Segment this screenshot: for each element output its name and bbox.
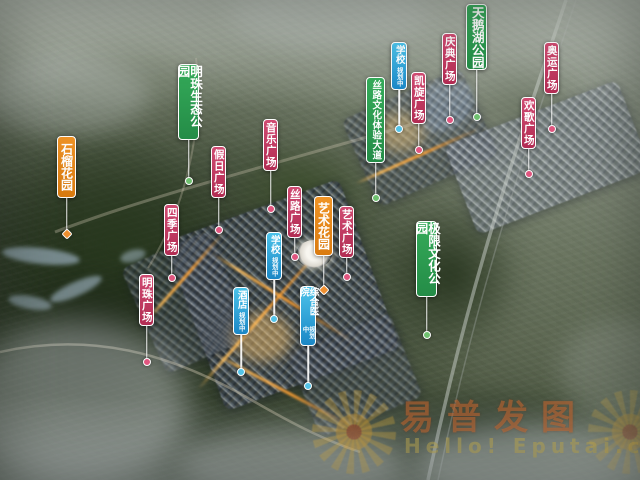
map-tag-art-plaza: 艺术广场 bbox=[339, 206, 354, 258]
map-tag-pearl-plaza: 明珠广场 bbox=[139, 274, 154, 326]
map-tag-text: 音乐广场 bbox=[265, 122, 276, 168]
map-tag-text: 假日广场 bbox=[213, 149, 224, 195]
map-pin-swan-lake-park: 天鹅湖公园 bbox=[466, 4, 487, 70]
pin-dot bbox=[473, 113, 481, 121]
map-tag-text: 石榴花园 bbox=[61, 143, 73, 191]
map-tag-extreme-culture-park: 极限文化公园 bbox=[416, 221, 437, 297]
map-tag-pomegranate-garden: 石榴花园 bbox=[57, 136, 76, 198]
map-tag-silk-road-plaza: 丝路广场 bbox=[287, 186, 302, 238]
pin-dot bbox=[343, 273, 351, 281]
map-tag-text: 庆典广场 bbox=[444, 36, 455, 82]
map-pin-pearl-plaza: 明珠广场 bbox=[139, 274, 154, 326]
map-tag-art-garden: 艺术花园 bbox=[314, 196, 333, 256]
map-pin-pearl-eco-park: 明珠生态公园 bbox=[178, 64, 199, 140]
map-tag-text: 艺术广场 bbox=[341, 209, 352, 255]
map-tag-text: 明珠生态公园 bbox=[176, 65, 201, 139]
map-tag-text: 丝路广场 bbox=[289, 189, 300, 235]
pin-line bbox=[528, 149, 530, 172]
map-tag-school-central: 学校规划中 bbox=[266, 232, 282, 280]
map-tag-music-plaza: 音乐广场 bbox=[263, 119, 278, 171]
pin-dot bbox=[267, 205, 275, 213]
map-tag-text: 极限文化公园 bbox=[414, 222, 439, 296]
pin-line bbox=[375, 163, 377, 196]
map-pin-art-plaza: 艺术广场 bbox=[339, 206, 354, 258]
map-tag-pearl-eco-park: 明珠生态公园 bbox=[178, 64, 199, 140]
map-pin-silk-culture-avenue: 丝路文化体验大道 bbox=[366, 77, 385, 163]
pin-dot bbox=[548, 125, 556, 133]
map-tag-hospital: 综合医院规划中 bbox=[300, 286, 316, 346]
map-tag-text: 欢歌广场 bbox=[523, 100, 534, 146]
pin-line bbox=[171, 256, 173, 276]
map-pin-school-central: 学校规划中 bbox=[266, 232, 282, 280]
pin-dot bbox=[168, 274, 176, 282]
pin-dot bbox=[237, 368, 245, 376]
map-tag-silk-culture-avenue: 丝路文化体验大道 bbox=[366, 77, 385, 163]
map-pin-school-north: 学校规划中 bbox=[391, 42, 407, 90]
map-pin-four-seasons-plaza: 四季广场 bbox=[164, 204, 179, 256]
pin-line bbox=[476, 70, 478, 115]
map-tag-text: 学校 bbox=[394, 45, 404, 64]
map-tag-text: 综合医院 bbox=[299, 287, 318, 323]
pin-line bbox=[551, 94, 553, 127]
pin-dot bbox=[143, 358, 151, 366]
map-tag-triumph-plaza: 凯旋广场 bbox=[411, 72, 426, 124]
map-tag-text: 奥运广场 bbox=[546, 45, 557, 91]
pin-dot bbox=[525, 170, 533, 178]
pin-dot bbox=[291, 253, 299, 261]
map-tag-holiday-plaza: 假日广场 bbox=[211, 146, 226, 198]
map-tag-olympic-plaza: 奥运广场 bbox=[544, 42, 559, 94]
pin-line bbox=[188, 140, 190, 179]
map-tag-text: 天鹅湖公园 bbox=[470, 6, 483, 69]
map-pin-celebration-plaza: 庆典广场 bbox=[442, 33, 457, 85]
pin-line bbox=[66, 198, 68, 232]
map-pin-music-plaza: 音乐广场 bbox=[263, 119, 278, 171]
map-tag-text: 艺术花园 bbox=[318, 202, 330, 250]
pin-line bbox=[240, 335, 242, 370]
map-tag-text: 明珠广场 bbox=[141, 277, 152, 323]
map-tag-school-north: 学校规划中 bbox=[391, 42, 407, 90]
map-tag-celebration-plaza: 庆典广场 bbox=[442, 33, 457, 85]
map-tag-subtext: 规划中 bbox=[271, 257, 278, 277]
map-pin-art-garden: 艺术花园 bbox=[314, 196, 333, 256]
pin-dot bbox=[372, 194, 380, 202]
map-tag-text: 学校 bbox=[269, 235, 279, 254]
map-pin-triumph-plaza: 凯旋广场 bbox=[411, 72, 426, 124]
map-pin-holiday-plaza: 假日广场 bbox=[211, 146, 226, 198]
pin-line bbox=[398, 90, 400, 127]
pin-line bbox=[146, 326, 148, 360]
pin-dot bbox=[270, 315, 278, 323]
map-pin-hotel: 酒店规划中 bbox=[233, 287, 249, 335]
pin-dot bbox=[446, 116, 454, 124]
map-pin-olympic-plaza: 奥运广场 bbox=[544, 42, 559, 94]
pin-dot bbox=[415, 146, 423, 154]
pin-line bbox=[418, 124, 420, 148]
pin-dot bbox=[395, 125, 403, 133]
pin-dot bbox=[185, 177, 193, 185]
pin-dot bbox=[318, 284, 329, 295]
map-annotations: 石榴花园明珠生态公园四季广场明珠广场假日广场音乐广场丝路广场艺术花园艺术广场丝路… bbox=[0, 0, 640, 480]
pin-line bbox=[273, 280, 275, 317]
map-tag-text: 酒店 bbox=[236, 290, 246, 309]
pin-dot bbox=[61, 228, 72, 239]
map-tag-four-seasons-plaza: 四季广场 bbox=[164, 204, 179, 256]
pin-line bbox=[323, 256, 325, 288]
aerial-masterplan-image: 易普发图 Hello! Eputai.cn 石榴花园明珠生态公园四季广场明珠广场… bbox=[0, 0, 640, 480]
map-tag-text: 丝路文化体验大道 bbox=[371, 80, 381, 160]
map-pin-pomegranate-garden: 石榴花园 bbox=[57, 136, 76, 198]
pin-dot bbox=[423, 331, 431, 339]
map-tag-joysong-plaza: 欢歌广场 bbox=[521, 97, 536, 149]
pin-line bbox=[426, 297, 428, 333]
map-tag-hotel: 酒店规划中 bbox=[233, 287, 249, 335]
pin-line bbox=[307, 346, 309, 384]
pin-line bbox=[449, 85, 451, 118]
map-pin-hospital: 综合医院规划中 bbox=[300, 286, 316, 346]
pin-line bbox=[218, 198, 220, 228]
pin-line bbox=[270, 171, 272, 207]
map-tag-text: 四季广场 bbox=[166, 207, 177, 253]
map-tag-subtext: 规划中 bbox=[396, 67, 403, 87]
map-tag-subtext: 规划中 bbox=[238, 312, 245, 332]
map-tag-subtext: 规划中 bbox=[302, 326, 315, 345]
map-pin-silk-road-plaza: 丝路广场 bbox=[287, 186, 302, 238]
map-pin-extreme-culture-park: 极限文化公园 bbox=[416, 221, 437, 297]
map-tag-text: 凯旋广场 bbox=[413, 75, 424, 121]
pin-dot bbox=[304, 382, 312, 390]
map-pin-joysong-plaza: 欢歌广场 bbox=[521, 97, 536, 149]
map-tag-swan-lake-park: 天鹅湖公园 bbox=[466, 4, 487, 70]
pin-dot bbox=[215, 226, 223, 234]
